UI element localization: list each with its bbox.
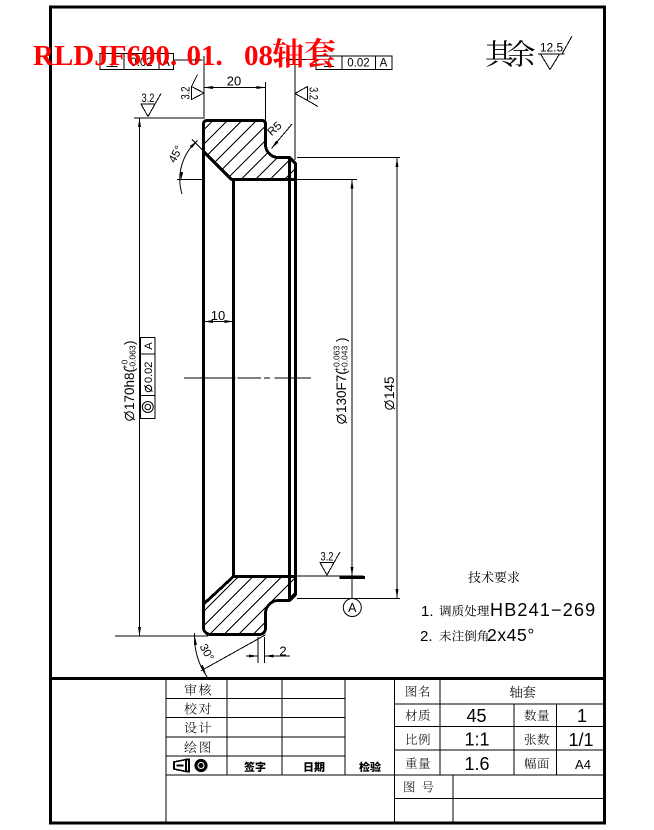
svg-text:-0.063: -0.063 bbox=[128, 345, 138, 369]
svg-text:1: 1 bbox=[577, 706, 587, 726]
svg-text:A4: A4 bbox=[575, 757, 591, 772]
svg-text:0.02: 0.02 bbox=[347, 58, 369, 70]
svg-text:01.: 01. bbox=[187, 40, 223, 72]
svg-text:+0.043: +0.043 bbox=[340, 345, 350, 372]
svg-text:A: A bbox=[380, 58, 388, 70]
svg-text:): ) bbox=[334, 338, 349, 343]
svg-text:3.2: 3.2 bbox=[181, 87, 193, 100]
svg-text:RLDJF600.: RLDJF600. bbox=[33, 40, 177, 72]
svg-text:3.2: 3.2 bbox=[321, 552, 334, 564]
svg-text:0.02: 0.02 bbox=[143, 362, 155, 383]
svg-text:130F7(: 130F7( bbox=[334, 370, 349, 413]
svg-text:HB241−269: HB241−269 bbox=[490, 600, 596, 620]
svg-text:170h8(: 170h8( bbox=[122, 367, 137, 410]
svg-text:1.6: 1.6 bbox=[464, 754, 489, 774]
svg-text:2: 2 bbox=[279, 644, 286, 659]
svg-text:145: 145 bbox=[382, 376, 397, 399]
svg-text:3.2: 3.2 bbox=[142, 93, 155, 105]
svg-text:08: 08 bbox=[244, 40, 273, 72]
svg-text:3.2: 3.2 bbox=[307, 87, 319, 100]
svg-text:A: A bbox=[143, 342, 155, 350]
svg-text:A: A bbox=[348, 601, 357, 615]
svg-text:12.5: 12.5 bbox=[540, 41, 564, 55]
svg-text:10: 10 bbox=[211, 308, 225, 323]
svg-text:1.: 1. bbox=[421, 603, 434, 620]
svg-text:20: 20 bbox=[227, 74, 241, 89]
svg-text:2x45°: 2x45° bbox=[487, 625, 535, 645]
svg-text:1/1: 1/1 bbox=[568, 730, 593, 750]
svg-text:): ) bbox=[122, 341, 137, 346]
svg-text:2.: 2. bbox=[420, 628, 433, 645]
svg-text:1:1: 1:1 bbox=[464, 730, 489, 750]
svg-text:45: 45 bbox=[466, 706, 486, 726]
